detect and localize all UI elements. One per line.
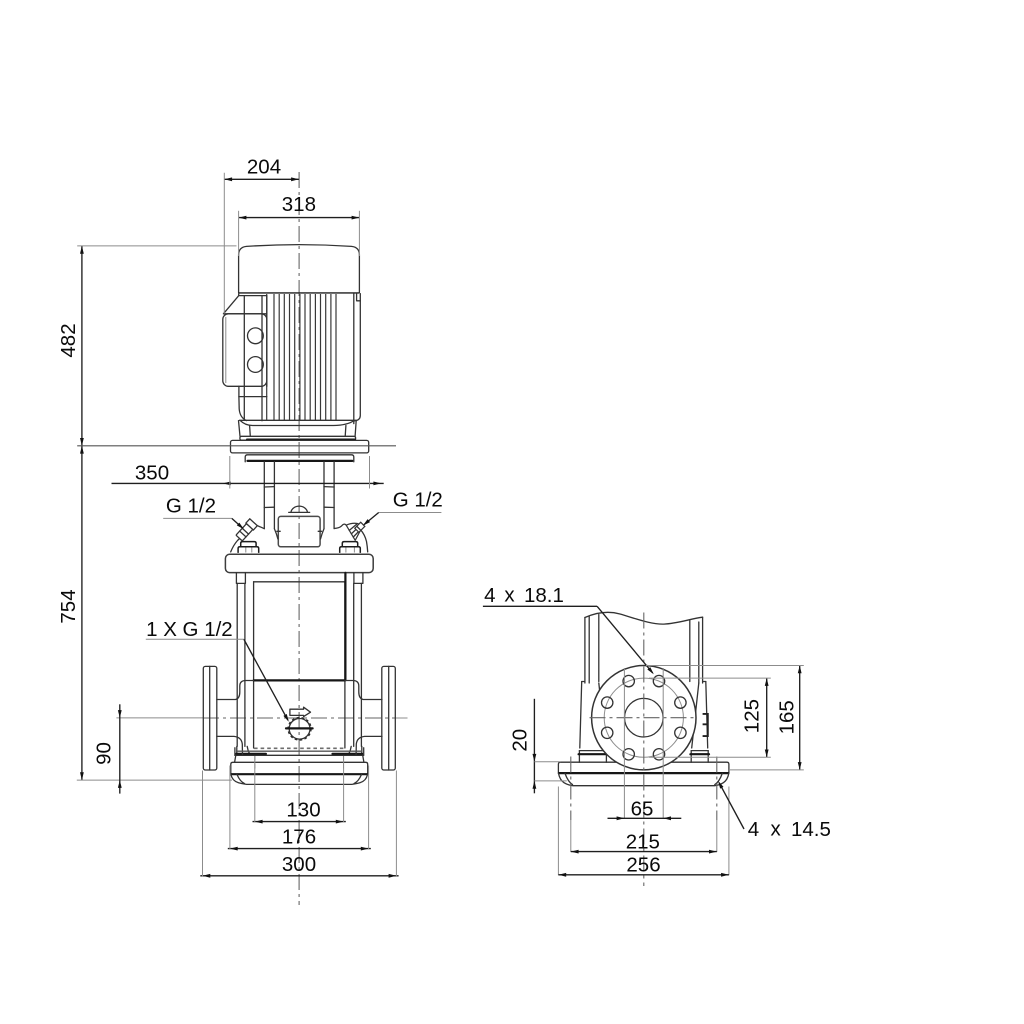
- svg-text:204: 204: [247, 155, 281, 178]
- svg-text:215: 215: [626, 831, 660, 854]
- svg-text:90: 90: [93, 742, 116, 765]
- svg-text:14.5: 14.5: [791, 818, 831, 841]
- svg-text:G 1/2: G 1/2: [393, 488, 443, 511]
- svg-text:754: 754: [57, 589, 80, 623]
- svg-text:65: 65: [631, 798, 654, 821]
- svg-text:176: 176: [282, 826, 316, 849]
- svg-text:318: 318: [282, 193, 316, 216]
- svg-text:165: 165: [776, 700, 799, 734]
- svg-text:x: x: [771, 817, 782, 840]
- svg-text:18.1: 18.1: [524, 584, 564, 607]
- svg-text:4: 4: [484, 584, 495, 607]
- svg-text:x: x: [504, 584, 515, 607]
- svg-text:482: 482: [57, 323, 80, 357]
- svg-text:4: 4: [748, 818, 759, 841]
- svg-text:G 1/2: G 1/2: [166, 495, 216, 518]
- svg-text:130: 130: [286, 798, 320, 821]
- svg-text:256: 256: [626, 854, 660, 877]
- svg-text:300: 300: [282, 853, 316, 876]
- svg-text:125: 125: [741, 699, 764, 733]
- svg-text:350: 350: [135, 462, 169, 485]
- svg-text:1 X G 1/2: 1 X G 1/2: [146, 618, 233, 641]
- svg-text:20: 20: [509, 729, 532, 752]
